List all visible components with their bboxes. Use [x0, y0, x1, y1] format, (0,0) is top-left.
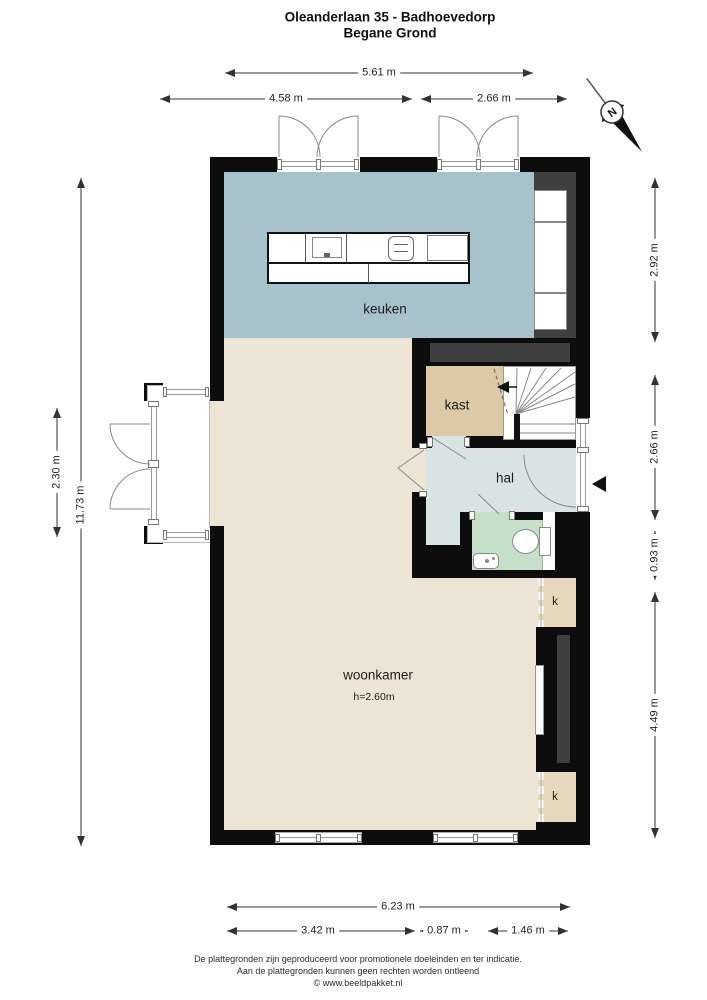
window-jamb — [577, 418, 589, 424]
wall-segment — [462, 570, 576, 578]
dim-label: 2.66 m — [649, 426, 662, 468]
stairs-area — [503, 366, 576, 440]
window-jamb — [275, 834, 280, 842]
radiator-panel — [535, 665, 544, 735]
window-jamb — [437, 159, 442, 170]
island-divider — [368, 264, 369, 283]
footer-disclaimer-2: Aan de plattegronden kunnen geen rechten… — [237, 966, 479, 976]
glazing-line — [585, 419, 586, 511]
wall-segment — [555, 512, 576, 572]
room-label-k-bottom: k — [552, 791, 558, 803]
door-jamb — [427, 437, 433, 447]
dim-label: 2.92 m — [649, 239, 662, 281]
island-divider — [305, 234, 306, 262]
compass-icon: N — [576, 70, 654, 160]
kitchen-cabinet — [534, 293, 567, 330]
bay-opening — [210, 401, 224, 526]
room-hal-ext — [426, 512, 460, 545]
window-jamb — [577, 447, 589, 453]
room-label-k-top: k — [552, 596, 558, 608]
cooktop-icon — [388, 236, 414, 261]
glazing-line — [164, 537, 209, 538]
wall-segment — [576, 512, 590, 845]
glazing-line — [580, 419, 581, 511]
wall-segment — [460, 512, 472, 570]
glazing-line — [164, 532, 209, 533]
chimney-inset — [557, 635, 570, 763]
dim-label: 11.73 m — [75, 482, 88, 529]
cooktop-line — [394, 244, 408, 245]
window-jamb — [433, 834, 438, 842]
footer-copyright: © www.beeldpakket.nl — [314, 978, 403, 988]
entrance-arrow-icon — [592, 476, 606, 492]
wall-segment — [576, 157, 590, 418]
dim-label: 0.93 m — [649, 534, 662, 576]
window-jamb — [163, 387, 167, 397]
wall-segment — [210, 526, 224, 845]
hal-door-opening — [412, 448, 426, 492]
appliance-icon — [427, 235, 468, 261]
toilet-icon — [512, 529, 539, 554]
basin-drain — [485, 559, 489, 563]
window-jamb — [148, 401, 159, 407]
window-jamb — [476, 159, 481, 170]
window-jamb — [163, 530, 167, 540]
dim-label: 2.30 m — [51, 451, 64, 493]
compass-north-label: N — [606, 106, 620, 120]
room-label-woonkamer: woonkamer — [343, 668, 413, 683]
room-height-label: h=2.60m — [353, 691, 394, 703]
wall-segment — [210, 830, 590, 845]
wall-segment — [210, 157, 224, 401]
wall-segment — [412, 366, 426, 448]
glazing-line — [164, 394, 209, 395]
cooktop-line — [394, 251, 408, 252]
kitchen-cabinet — [534, 222, 567, 293]
wall-segment — [513, 512, 543, 520]
kast-doorway — [432, 436, 466, 448]
room-woonkamer-right — [412, 578, 538, 830]
toilet-tank-icon — [539, 527, 551, 556]
room-label-keuken: keuken — [363, 302, 407, 317]
dim-label: 4.49 m — [649, 694, 662, 736]
door-jamb — [464, 437, 470, 447]
door-jamb — [469, 511, 475, 520]
dim-label: 6.23 m — [377, 901, 419, 914]
wall-segment — [412, 492, 426, 545]
glazing-line — [164, 389, 209, 390]
dim-label: 0.87 m — [423, 925, 465, 938]
window-jamb — [354, 159, 359, 170]
toilet-doorway — [472, 512, 513, 520]
dim-label: 2.66 m — [473, 93, 515, 106]
kitchen-cabinet — [534, 190, 567, 222]
basin-faucet — [492, 557, 495, 560]
window-jamb — [148, 519, 159, 525]
window-jamb — [205, 530, 209, 540]
window-jamb — [473, 834, 478, 842]
wall-segment — [536, 822, 576, 830]
room-label-kast: kast — [445, 398, 470, 413]
window-jamb — [148, 460, 159, 468]
wall-segment — [412, 545, 462, 578]
island-divider — [346, 234, 347, 262]
page-title: Oleanderlaan 35 - Badhoevedorp — [285, 10, 496, 25]
door-jamb — [419, 443, 427, 449]
room-label-hal: hal — [496, 471, 514, 486]
window-jamb — [513, 834, 518, 842]
page-subtitle: Begane Grond — [343, 26, 436, 41]
window-jamb — [357, 834, 362, 842]
room-woonkamer — [224, 338, 412, 830]
door-jamb — [419, 491, 427, 497]
dim-label: 5.61 m — [358, 67, 400, 80]
wardrobe-inset — [430, 343, 570, 362]
floorplan-page: Oleanderlaan 35 - Badhoevedorp Begane Gr… — [0, 0, 707, 1000]
footer-disclaimer-1: De plattegronden zijn geproduceerd voor … — [194, 954, 522, 964]
window-jamb — [316, 159, 321, 170]
wall-segment — [210, 157, 590, 172]
window — [163, 385, 210, 399]
dim-label: 3.42 m — [297, 925, 339, 938]
front-door — [576, 418, 590, 512]
door-jamb — [509, 511, 515, 520]
faucet-icon — [324, 253, 330, 257]
window-jamb — [205, 387, 209, 397]
wall-segment — [503, 440, 576, 448]
window-jamb — [277, 159, 282, 170]
window-jamb — [514, 159, 519, 170]
window-jamb — [316, 834, 321, 842]
window — [163, 528, 210, 542]
dim-label: 4.58 m — [265, 93, 307, 106]
window-jamb — [577, 506, 589, 512]
dim-label: 1.46 m — [507, 925, 549, 938]
